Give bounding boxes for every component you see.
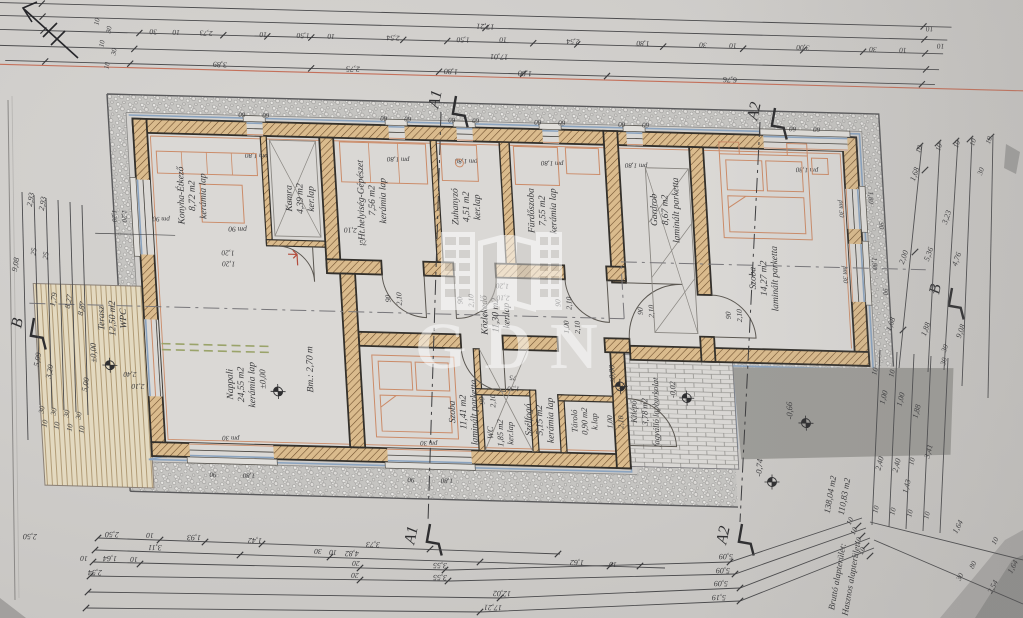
svg-text:kerámia lap: kerámia lap: [198, 173, 209, 219]
svg-text:WC: WC: [485, 426, 495, 440]
svg-text:60: 60: [238, 110, 246, 118]
svg-text:GDN: GDN: [415, 310, 616, 383]
svg-text:kerámia lap: kerámia lap: [548, 188, 559, 234]
svg-text:WPC: WPC: [119, 308, 129, 329]
svg-text:laminált parketta: laminált parketta: [469, 379, 481, 445]
svg-text:2,50: 2,50: [23, 532, 37, 541]
svg-text:17,21: 17,21: [484, 603, 502, 612]
svg-text:90: 90: [209, 470, 217, 478]
svg-text:ker.lap: ker.lap: [306, 186, 317, 212]
svg-text:17,21: 17,21: [476, 22, 494, 32]
svg-text:Tároló: Tároló: [569, 409, 580, 433]
svg-text:1,20: 1,20: [222, 259, 236, 269]
svg-text:Fürdőszoba: Fürdőszoba: [525, 188, 537, 235]
svg-text:11,41 m2: 11,41 m2: [459, 394, 470, 429]
svg-text:Kilépő: Kilépő: [628, 399, 639, 424]
svg-text:2,10: 2,10: [564, 296, 573, 310]
svg-text:Terasz: Terasz: [97, 305, 108, 330]
svg-text:30: 30: [314, 547, 323, 556]
svg-text:24,55 m2: 24,55 m2: [236, 366, 247, 402]
svg-text:3,11: 3,11: [148, 543, 163, 552]
svg-text:2,40: 2,40: [123, 370, 137, 379]
svg-text:ker.lap: ker.lap: [505, 422, 516, 445]
svg-text:8,72 m2: 8,72 m2: [187, 180, 198, 211]
svg-text:1,42: 1,42: [248, 536, 262, 545]
svg-text:3,55: 3,55: [433, 561, 448, 570]
svg-text:2,10: 2,10: [394, 292, 403, 306]
svg-text:Ht.helyiség-Gépészet: Ht.helyiség-Gépészet: [356, 160, 368, 242]
svg-text:4,39 m2: 4,39 m2: [295, 183, 306, 214]
svg-text:20: 20: [352, 559, 360, 568]
svg-text:1,80: 1,80: [242, 471, 255, 480]
svg-text:Kamra: Kamra: [284, 185, 295, 213]
svg-text:kerámia lap: kerámia lap: [546, 397, 557, 443]
svg-text:17,01: 17,01: [490, 52, 508, 62]
svg-text:2,10: 2,10: [647, 304, 656, 318]
svg-text:10: 10: [80, 554, 88, 563]
svg-text:90: 90: [636, 307, 645, 315]
svg-text:1,62: 1,62: [570, 558, 584, 567]
svg-text:60: 60: [558, 119, 566, 127]
svg-text:kerámia lap: kerámia lap: [378, 178, 389, 224]
svg-text:1,80: 1,80: [518, 69, 532, 79]
svg-text:2,10: 2,10: [488, 394, 497, 408]
svg-text:2,54: 2,54: [88, 568, 102, 577]
svg-text:7,56 m2: 7,56 m2: [367, 185, 378, 216]
svg-text:1,93: 1,93: [187, 533, 201, 542]
svg-text:10: 10: [146, 531, 154, 540]
svg-text:Gardrob: Gardrob: [649, 193, 660, 226]
svg-text:3,73: 3,73: [366, 540, 381, 549]
svg-text:5,15 m2: 5,15 m2: [535, 404, 546, 435]
svg-text:2,50: 2,50: [105, 530, 119, 539]
svg-text:10: 10: [130, 555, 138, 564]
svg-text:±0,00: ±0,00: [88, 342, 98, 363]
svg-text:1,80: 1,80: [440, 476, 453, 485]
svg-text:30: 30: [149, 27, 158, 36]
svg-text:Zuhanyzó: Zuhanyzó: [451, 188, 462, 226]
svg-text:1,20: 1,20: [110, 210, 118, 223]
svg-text:Nappali: Nappali: [225, 368, 236, 400]
svg-text:60: 60: [404, 115, 412, 123]
svg-text:0,90 m2: 0,90 m2: [579, 407, 590, 436]
svg-text:pm 90: pm 90: [152, 215, 171, 224]
svg-text:8,67 m2: 8,67 m2: [660, 194, 671, 225]
svg-text:1,50: 1,50: [507, 384, 520, 393]
svg-text:2,75: 2,75: [346, 64, 360, 74]
svg-text:60: 60: [262, 111, 270, 119]
svg-text:3,78 m2: 3,78 m2: [639, 397, 650, 427]
svg-text:10: 10: [259, 30, 267, 39]
svg-text:10: 10: [172, 28, 180, 37]
svg-text:Bm.: 2,70 m: Bm.: 2,70 m: [305, 346, 316, 393]
svg-text:90: 90: [383, 294, 392, 302]
svg-text:Szélfogó: Szélfogó: [523, 403, 535, 436]
svg-text:pm 90: pm 90: [228, 225, 248, 235]
svg-text:60: 60: [472, 116, 480, 124]
svg-text:±0,00: ±0,00: [257, 368, 267, 389]
svg-text:3,55: 3,55: [433, 573, 448, 582]
svg-text:10: 10: [499, 35, 507, 44]
svg-text:60: 60: [380, 114, 388, 122]
svg-text:1,50: 1,50: [296, 31, 310, 41]
svg-text:1,20: 1,20: [221, 248, 235, 258]
svg-text:1,20: 1,20: [120, 210, 128, 223]
svg-text:1,80: 1,80: [636, 39, 650, 49]
svg-text:k.lap: k.lap: [589, 413, 599, 430]
svg-text:60: 60: [618, 120, 626, 128]
svg-text:pm 30: pm 30: [419, 439, 438, 448]
svg-text:pm 30: pm 30: [222, 434, 241, 443]
svg-text:laminált parketta: laminált parketta: [671, 177, 683, 243]
svg-text:pm 1,80: pm 1,80: [454, 157, 478, 166]
svg-text:2,54: 2,54: [386, 33, 400, 43]
svg-text:2,54: 2,54: [566, 37, 580, 47]
svg-text:10: 10: [329, 548, 337, 557]
svg-text:2,10: 2,10: [616, 415, 625, 429]
svg-text:3,89: 3,89: [213, 60, 228, 70]
svg-text:1,00: 1,00: [605, 415, 614, 429]
svg-text:-0,02: -0,02: [668, 381, 677, 398]
svg-text:1,80: 1,80: [444, 67, 458, 77]
svg-text:1,64: 1,64: [103, 554, 117, 563]
svg-text:Szoba: Szoba: [448, 400, 459, 423]
svg-text:pm 1,80: pm 1,80: [540, 159, 564, 168]
svg-text:2,10: 2,10: [131, 382, 145, 391]
svg-text:4,51 m2: 4,51 m2: [462, 191, 473, 222]
svg-text:20: 20: [351, 571, 359, 580]
svg-text:ker.lap: ker.lap: [473, 194, 484, 220]
svg-text:90: 90: [407, 475, 415, 483]
svg-text:1,50: 1,50: [456, 35, 470, 45]
svg-text:60: 60: [642, 121, 650, 129]
svg-text:7,55 m2: 7,55 m2: [538, 195, 549, 226]
svg-text:1,85 m2: 1,85 m2: [495, 418, 506, 447]
svg-text:60: 60: [448, 116, 456, 124]
svg-text:60: 60: [534, 118, 542, 126]
svg-text:10: 10: [327, 32, 335, 41]
svg-text:4,82: 4,82: [345, 549, 359, 558]
svg-text:2,10: 2,10: [343, 226, 357, 236]
svg-text:10: 10: [609, 560, 617, 569]
svg-text:2,73: 2,73: [199, 28, 213, 38]
